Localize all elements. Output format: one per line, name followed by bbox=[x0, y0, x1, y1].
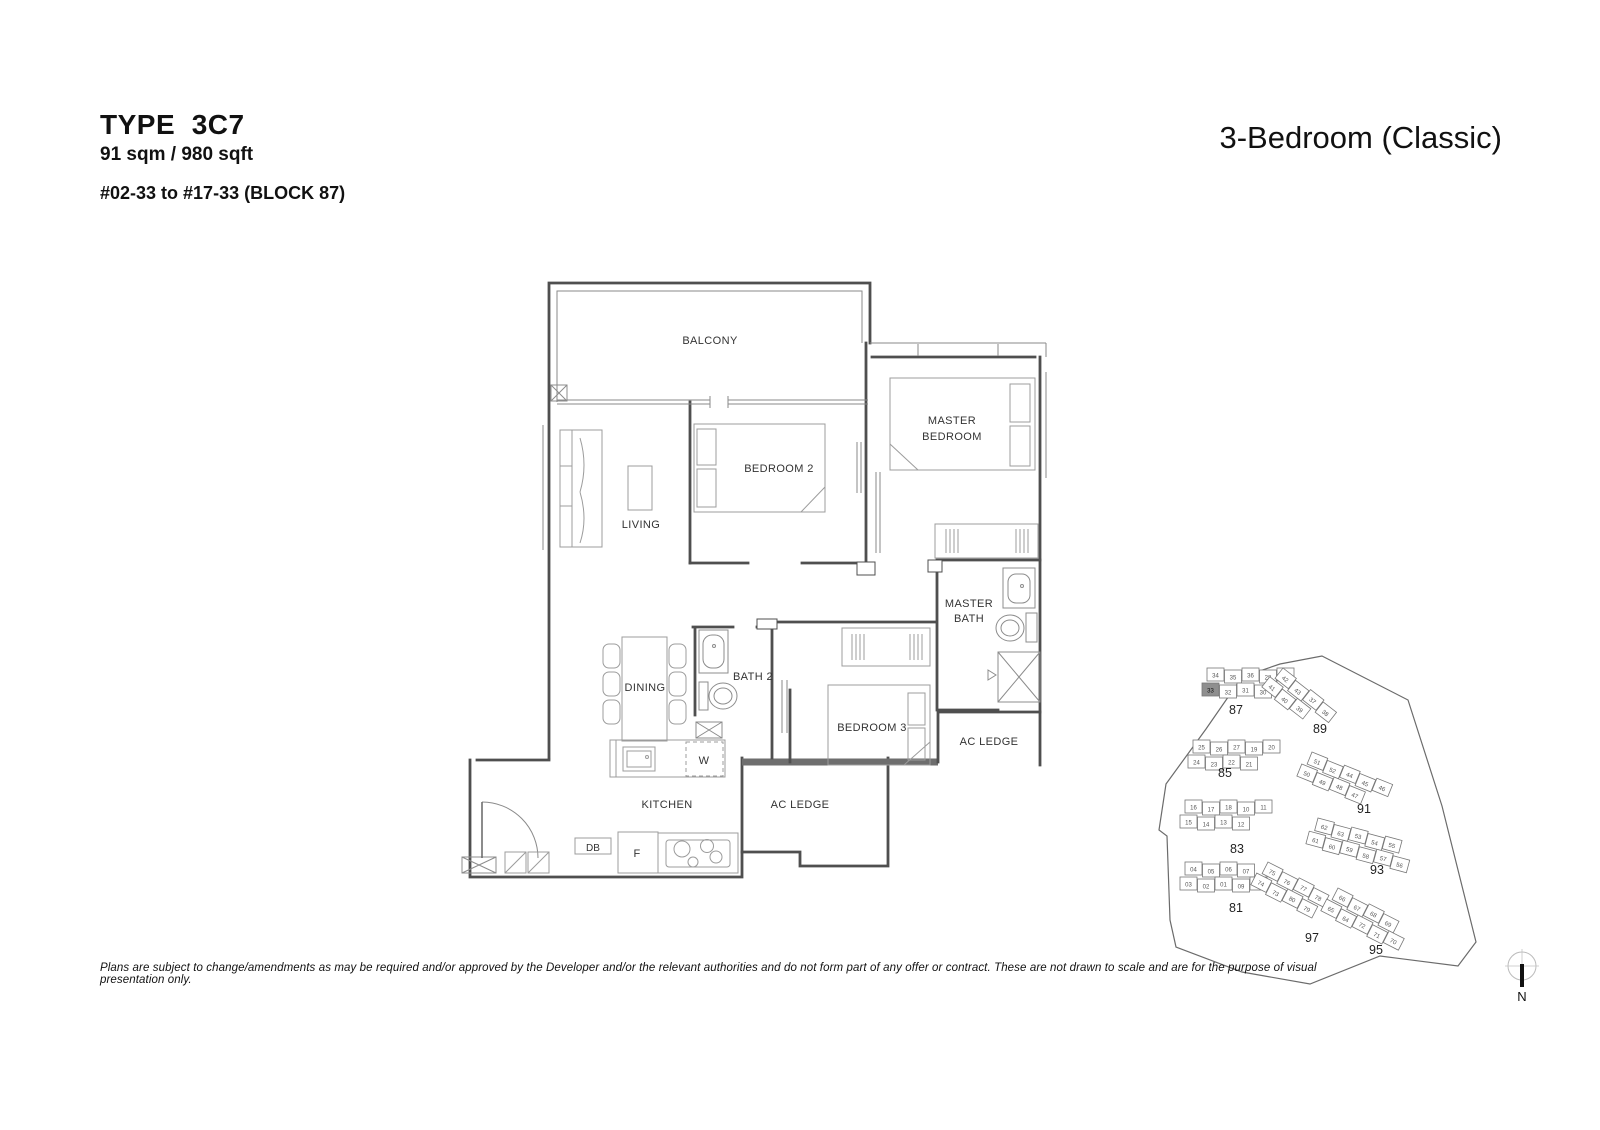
site-unit-number: 12 bbox=[1238, 823, 1245, 829]
site-unit-number: 16 bbox=[1190, 806, 1197, 812]
bath2-label: BATH 2 bbox=[733, 671, 773, 683]
master-window-band bbox=[870, 343, 1046, 357]
balcony-label: BALCONY bbox=[682, 335, 738, 347]
site-unit-number: 20 bbox=[1268, 746, 1275, 752]
site-unit-number: 33 bbox=[1207, 689, 1214, 695]
site-unit-number: 35 bbox=[1230, 676, 1237, 682]
site-unit-number: 17 bbox=[1208, 808, 1215, 814]
site-unit-number: 31 bbox=[1242, 689, 1249, 695]
bottom-outer-wall bbox=[470, 760, 742, 877]
site-unit-number: 09 bbox=[1238, 885, 1245, 891]
db-label: DB bbox=[586, 843, 600, 854]
entry-door-arc[interactable] bbox=[482, 802, 538, 858]
master-shower bbox=[988, 652, 1040, 702]
site-unit-number: 15 bbox=[1185, 821, 1192, 827]
bath2-toilet bbox=[699, 682, 737, 710]
site-unit-number: 30 bbox=[1260, 691, 1267, 697]
bath2-vanity bbox=[699, 630, 728, 673]
site-unit-number: 19 bbox=[1251, 748, 1258, 754]
site-block-95: 666768696564727170 bbox=[1320, 886, 1411, 952]
site-block-label-93: 93 bbox=[1370, 863, 1384, 877]
site-unit-number: 21 bbox=[1246, 763, 1253, 769]
master-bath-walls bbox=[937, 560, 1040, 710]
living-label: LIVING bbox=[622, 519, 660, 531]
site-blocks: 3435362829333231308742433738414039892526… bbox=[1180, 665, 1414, 957]
site-block-label-89: 89 bbox=[1313, 722, 1327, 736]
tv-console bbox=[628, 466, 652, 510]
site-block-81: 040506070302010908 bbox=[1180, 862, 1267, 892]
site-unit-number: 25 bbox=[1198, 746, 1205, 752]
fridge-label: F bbox=[633, 848, 640, 860]
site-unit-number: 26 bbox=[1216, 748, 1223, 754]
master-bath-label-2: BATH bbox=[954, 613, 984, 625]
site-block-91: 515244454650494847 bbox=[1296, 750, 1393, 812]
site-block-label-83: 83 bbox=[1230, 842, 1244, 856]
plan-canvas: BALCONY LIVING BEDROOM 2 MASTER BEDROOM … bbox=[0, 0, 1600, 1130]
master-bedroom-label-2: BEDROOM bbox=[922, 431, 982, 443]
ac-ledge-bottom-outline bbox=[742, 758, 888, 866]
bath2-door-jamb bbox=[757, 619, 777, 629]
kitchen-label: KITCHEN bbox=[641, 799, 692, 811]
site-unit-number: 06 bbox=[1225, 868, 1232, 874]
ac-ledge-right-label: AC LEDGE bbox=[960, 736, 1019, 748]
entry-cabinets bbox=[505, 852, 549, 873]
site-unit-number: 01 bbox=[1220, 883, 1227, 889]
site-block-label-81: 81 bbox=[1229, 901, 1243, 915]
ac-ledge-bottom-label: AC LEDGE bbox=[771, 799, 830, 811]
master-bedroom-label-1: MASTER bbox=[928, 415, 976, 427]
site-unit-number: 14 bbox=[1203, 823, 1210, 829]
site-unit-number: 13 bbox=[1220, 821, 1227, 827]
wardrobe-slide-lines[interactable] bbox=[857, 442, 880, 553]
master-bath-jamb bbox=[928, 560, 942, 572]
north-label: N bbox=[1517, 989, 1526, 1004]
site-block-label-87: 87 bbox=[1229, 703, 1243, 717]
floorplan-drawing: BALCONY LIVING BEDROOM 2 MASTER BEDROOM … bbox=[462, 283, 1046, 877]
site-unit-number: 10 bbox=[1243, 808, 1250, 814]
site-unit-number: 27 bbox=[1233, 746, 1240, 752]
north-compass: N bbox=[1505, 949, 1539, 1004]
master-bath-vanity bbox=[1003, 568, 1035, 608]
site-unit-number: 32 bbox=[1225, 691, 1232, 697]
site-unit-number: 11 bbox=[1260, 806, 1267, 812]
site-unit-number: 03 bbox=[1185, 883, 1192, 889]
disclaimer-text: Plans are subject to change/amendments a… bbox=[100, 962, 1370, 986]
bedroom3-slide-door[interactable] bbox=[782, 680, 787, 733]
site-block-label-91: 91 bbox=[1357, 802, 1371, 816]
site-plan: 3435362829333231308742433738414039892526… bbox=[1159, 656, 1476, 984]
site-unit-number: 23 bbox=[1211, 763, 1218, 769]
site-block-83: 161718101115141312 bbox=[1180, 800, 1272, 830]
balcony-walls bbox=[549, 283, 870, 758]
site-unit-number: 18 bbox=[1225, 806, 1232, 812]
sofa bbox=[560, 430, 602, 547]
site-unit-number: 07 bbox=[1243, 870, 1250, 876]
floorplan-page: { "header": { "type_label": "TYPE 3C7", … bbox=[0, 0, 1600, 1130]
site-unit-number: 34 bbox=[1212, 674, 1219, 680]
site-unit-number: 04 bbox=[1190, 868, 1197, 874]
bedroom3-label: BEDROOM 3 bbox=[837, 722, 907, 734]
bedroom2-label: BEDROOM 2 bbox=[744, 463, 814, 475]
washer-label: W bbox=[699, 755, 710, 767]
site-unit-number: 05 bbox=[1208, 870, 1215, 876]
site-block-97: 7576777874738079 bbox=[1250, 860, 1330, 921]
master-bath-label-1: MASTER bbox=[945, 598, 993, 610]
master-bath-toilet bbox=[996, 613, 1037, 642]
site-block-label-97: 97 bbox=[1305, 931, 1319, 945]
site-block-label-95: 95 bbox=[1369, 943, 1383, 957]
site-block-label-85: 85 bbox=[1218, 766, 1232, 780]
balcony-sliding-door[interactable] bbox=[557, 396, 868, 408]
site-unit-number: 02 bbox=[1203, 885, 1210, 891]
site-unit-number: 24 bbox=[1193, 761, 1200, 767]
stove bbox=[658, 833, 738, 873]
dining-label: DINING bbox=[625, 682, 666, 694]
hall-door-jamb bbox=[857, 562, 875, 575]
bedroom3-wardrobe bbox=[842, 628, 930, 666]
site-block-85: 252627192024232221 bbox=[1188, 740, 1280, 770]
site-block-93: 6263535455616059585756 bbox=[1305, 817, 1414, 873]
master-wardrobe bbox=[935, 524, 1038, 558]
site-unit-number: 36 bbox=[1247, 674, 1254, 680]
